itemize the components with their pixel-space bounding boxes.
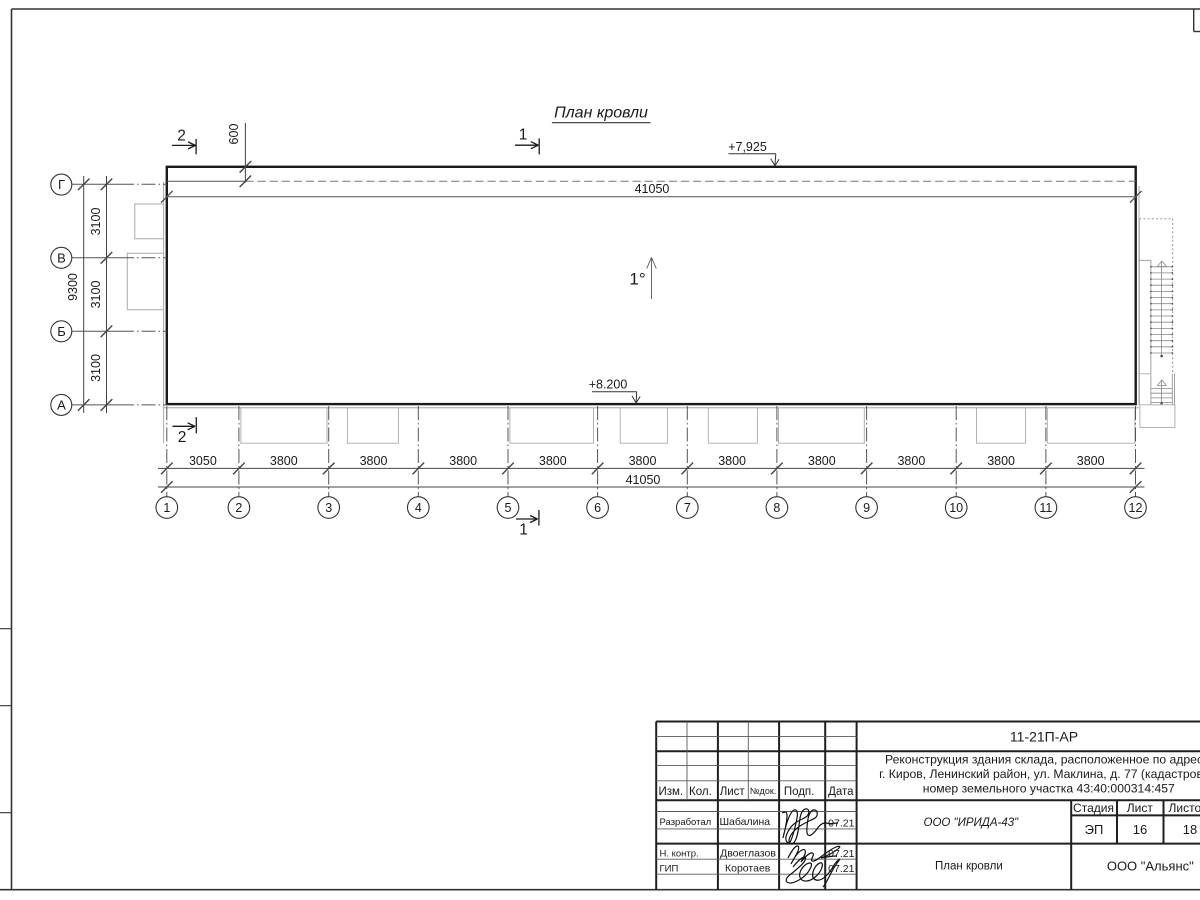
svg-text:7: 7 xyxy=(684,501,691,515)
svg-text:Листов: Листов xyxy=(1169,801,1200,815)
svg-text:8: 8 xyxy=(773,501,780,515)
svg-text:2: 2 xyxy=(235,501,242,515)
svg-text:Дата: Дата xyxy=(828,786,854,798)
svg-text:Б: Б xyxy=(57,324,66,339)
svg-text:Шабалина: Шабалина xyxy=(719,816,770,828)
svg-text:План кровли: План кровли xyxy=(935,861,1003,873)
svg-text:Г: Г xyxy=(58,177,65,192)
svg-text:№док.: №док. xyxy=(750,786,776,796)
svg-text:номер земельного участка 43:40: номер земельного участка 43:40:000314:45… xyxy=(923,782,1175,796)
svg-text:3100: 3100 xyxy=(89,354,103,382)
svg-text:План кровли: План кровли xyxy=(554,105,648,122)
svg-text:+8.200: +8.200 xyxy=(589,377,628,391)
svg-text:Стадия: Стадия xyxy=(1073,801,1114,815)
svg-text:4: 4 xyxy=(415,501,422,515)
svg-text:3800: 3800 xyxy=(808,454,836,468)
svg-text:Разработал: Разработал xyxy=(660,817,712,828)
svg-text:41050: 41050 xyxy=(626,473,661,487)
svg-text:Н. контр.: Н. контр. xyxy=(660,848,699,859)
svg-text:1°: 1° xyxy=(629,270,645,289)
svg-text:600: 600 xyxy=(227,124,241,145)
svg-text:ГИП: ГИП xyxy=(660,864,679,875)
svg-text:г. Киров, Ленинский район, ул.: г. Киров, Ленинский район, ул. Маклина, … xyxy=(879,767,1200,781)
svg-text:1: 1 xyxy=(519,522,528,539)
svg-text:2: 2 xyxy=(178,429,187,446)
svg-text:9300: 9300 xyxy=(66,273,80,301)
svg-text:16: 16 xyxy=(1133,822,1147,837)
svg-text:11: 11 xyxy=(1039,501,1052,515)
svg-text:Реконструкция здания склада, р: Реконструкция здания склада, расположенн… xyxy=(885,753,1200,767)
svg-text:3: 3 xyxy=(325,501,332,515)
svg-text:ООО "Альянс": ООО "Альянс" xyxy=(1107,858,1194,873)
svg-text:18: 18 xyxy=(1183,822,1197,837)
svg-text:3800: 3800 xyxy=(1077,454,1105,468)
svg-text:5: 5 xyxy=(505,501,512,515)
svg-text:41050: 41050 xyxy=(635,182,670,196)
svg-text:1: 1 xyxy=(163,501,170,515)
svg-text:3800: 3800 xyxy=(718,454,746,468)
svg-text:11-21П-АР: 11-21П-АР xyxy=(1010,729,1078,745)
svg-text:Подп.: Подп. xyxy=(784,786,815,798)
svg-text:3800: 3800 xyxy=(897,454,925,468)
svg-text:9: 9 xyxy=(863,501,870,515)
svg-text:Лист: Лист xyxy=(1127,801,1154,815)
svg-text:3800: 3800 xyxy=(987,454,1015,468)
svg-text:3800: 3800 xyxy=(449,454,477,468)
svg-text:Лист: Лист xyxy=(720,786,746,798)
svg-text:6: 6 xyxy=(594,501,601,515)
svg-text:+7,925: +7,925 xyxy=(728,140,767,154)
svg-text:В: В xyxy=(57,251,66,266)
svg-text:10: 10 xyxy=(949,501,963,515)
svg-text:ООО "ИРИДА-43": ООО "ИРИДА-43" xyxy=(924,817,1020,829)
svg-text:3800: 3800 xyxy=(539,454,567,468)
svg-text:3800: 3800 xyxy=(629,454,657,468)
svg-text:3800: 3800 xyxy=(360,454,388,468)
svg-text:1: 1 xyxy=(519,127,528,144)
svg-text:Кол.: Кол. xyxy=(689,786,712,798)
svg-text:2: 2 xyxy=(177,127,186,144)
svg-text:А: А xyxy=(57,398,66,413)
svg-text:Изм.: Изм. xyxy=(658,786,683,798)
svg-text:12: 12 xyxy=(1129,501,1143,515)
svg-text:07.21: 07.21 xyxy=(828,848,854,860)
svg-text:Двоеглазов: Двоеглазов xyxy=(720,847,776,859)
svg-text:3050: 3050 xyxy=(189,454,217,468)
svg-text:3100: 3100 xyxy=(89,281,103,309)
svg-text:3800: 3800 xyxy=(270,454,298,468)
svg-text:3100: 3100 xyxy=(89,208,103,236)
svg-text:Коротаев: Коротаев xyxy=(725,863,771,875)
svg-text:ЭП: ЭП xyxy=(1085,822,1104,837)
